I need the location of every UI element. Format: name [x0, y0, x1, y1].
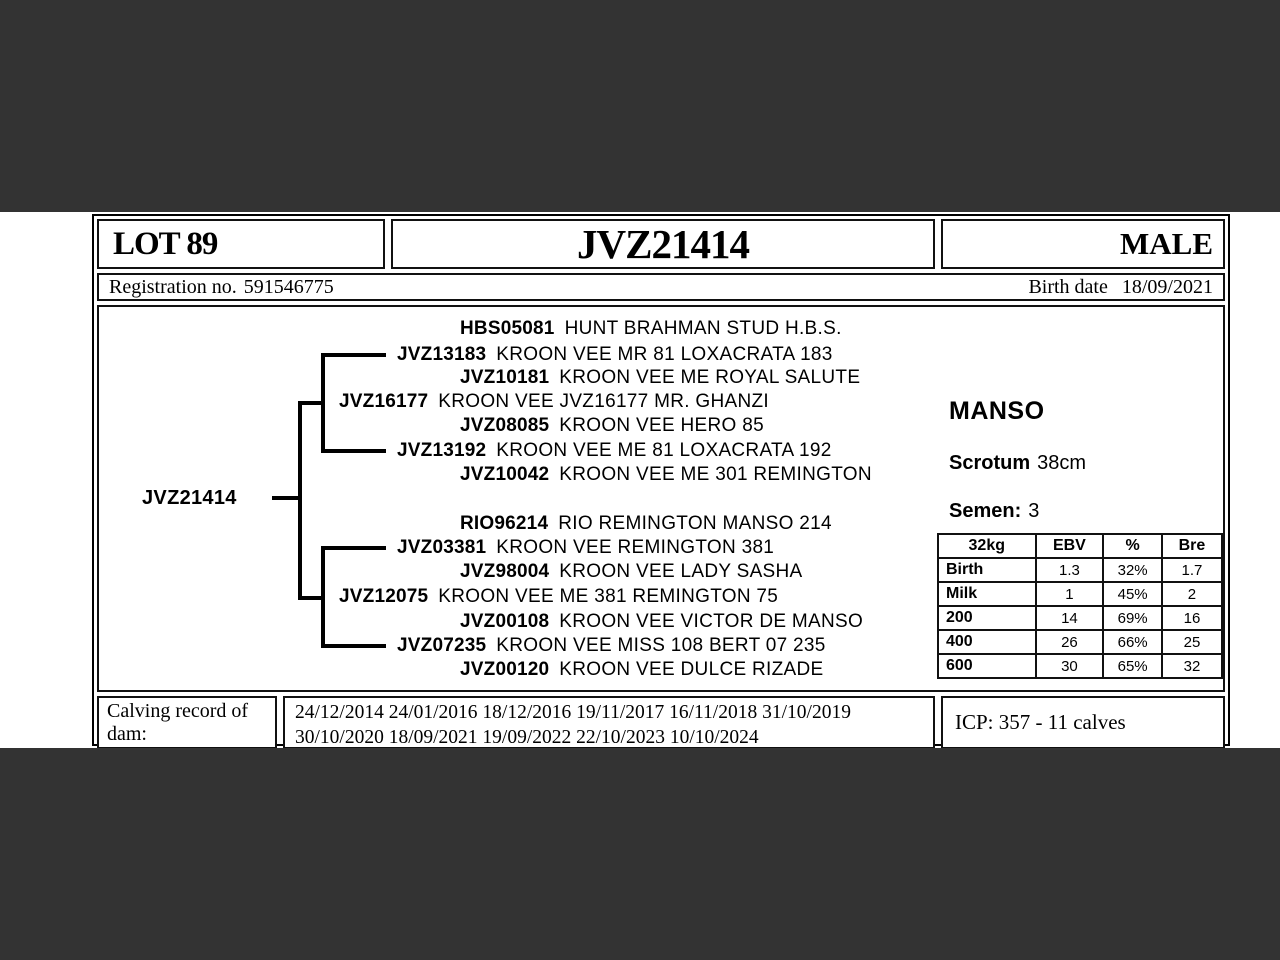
ebv-header-ebv: EBV [1036, 534, 1104, 558]
breed-name: MANSO [949, 397, 1045, 426]
card-header: LOT 89 JVZ21414 MALE [97, 219, 1225, 269]
ebv-value: 26 [1036, 630, 1104, 654]
pedigree-row: JVZ00120KROON VEE DULCE RIZADE [460, 658, 824, 682]
pedigree-row: JVZ10042KROON VEE ME 301 REMINGTON [460, 463, 872, 487]
registration-bar: Registration no.591546775 Birth date18/0… [97, 273, 1225, 301]
semen-label: Semen: [949, 500, 1021, 522]
animal-code: JVZ00120 [460, 659, 549, 680]
animal-code: JVZ03381 [397, 537, 486, 558]
pedigree-panel: JVZ21414 HBS05081HUNT BRAHMAN STUD H.B.S… [97, 305, 1225, 692]
pedigree-row: RIO96214RIO REMINGTON MANSO 214 [460, 512, 832, 536]
ebv-row-label: 400 [938, 630, 1036, 654]
ebv-table: 32kg EBV % Bre Birth 1.3 32% 1.7 Milk 1 … [937, 533, 1223, 679]
animal-name: KROON VEE DULCE RIZADE [559, 659, 823, 680]
calving-dates-line1: 24/12/2014 24/01/2016 18/12/2016 19/11/2… [295, 700, 923, 725]
ebv-accuracy: 66% [1103, 630, 1162, 654]
animal-name: KROON VEE ME 381 REMINGTON 75 [438, 586, 778, 607]
pedigree-row: JVZ13192KROON VEE ME 81 LOXACRATA 192 [397, 439, 832, 463]
calving-dates: 24/12/2014 24/01/2016 18/12/2016 19/11/2… [283, 696, 935, 749]
ebv-breed-avg: 16 [1162, 606, 1222, 630]
animal-name: KROON VEE REMINGTON 381 [496, 537, 774, 558]
animal-code: RIO96214 [460, 513, 548, 534]
pedigree-row: JVZ00108KROON VEE VICTOR DE MANSO [460, 610, 863, 634]
ebv-row-200: 200 14 69% 16 [938, 606, 1222, 630]
pedigree-row: JVZ08085KROON VEE HERO 85 [460, 414, 764, 438]
animal-code: JVZ10042 [460, 464, 549, 485]
registration-label: Registration no. [109, 276, 237, 298]
pedigree-row: JVZ98004KROON VEE LADY SASHA [460, 560, 803, 584]
page-background: LOT 89 JVZ21414 MALE Registration no.591… [0, 212, 1280, 748]
ebv-value: 30 [1036, 654, 1104, 678]
animal-code: JVZ07235 [397, 635, 486, 656]
scrotum-measurement: Scrotum38cm [949, 450, 1086, 476]
ebv-row-400: 400 26 66% 25 [938, 630, 1222, 654]
ebv-accuracy: 65% [1103, 654, 1162, 678]
ebv-breed-avg: 32 [1162, 654, 1222, 678]
animal-code: JVZ12075 [339, 586, 428, 607]
ebv-breed-avg: 2 [1162, 582, 1222, 606]
pedigree-row: JVZ03381KROON VEE REMINGTON 381 [397, 536, 774, 560]
animal-code: JVZ16177 [339, 391, 428, 412]
ebv-accuracy: 69% [1103, 606, 1162, 630]
ebv-row-600: 600 30 65% 32 [938, 654, 1222, 678]
animal-code: JVZ98004 [460, 561, 549, 582]
animal-name: KROON VEE LADY SASHA [559, 561, 802, 582]
pedigree-row: JVZ07235KROON VEE MISS 108 BERT 07 235 [397, 634, 826, 658]
ebv-breed-avg: 1.7 [1162, 558, 1222, 582]
ebv-value: 1 [1036, 582, 1104, 606]
animal-code: JVZ10181 [460, 367, 549, 388]
animal-code: HBS05081 [460, 318, 555, 339]
icp-value: ICP: 357 - 11 calves [941, 696, 1225, 749]
calving-dates-line2: 30/10/2020 18/09/2021 19/09/2022 22/10/2… [295, 725, 923, 750]
pedigree-row: JVZ10181KROON VEE ME ROYAL SALUTE [460, 366, 860, 390]
semen-value: 3 [1028, 500, 1039, 522]
animal-code: JVZ00108 [460, 611, 549, 632]
sex-label: MALE [941, 219, 1225, 269]
ebv-header-accuracy: % [1103, 534, 1162, 558]
ebv-row-label: 600 [938, 654, 1036, 678]
calving-record-label: Calving record of dam: [97, 696, 277, 749]
animal-name: KROON VEE HERO 85 [559, 415, 764, 436]
registration-value: 591546775 [244, 276, 334, 298]
ebv-value: 14 [1036, 606, 1104, 630]
card-footer: Calving record of dam: 24/12/2014 24/01/… [97, 696, 1225, 749]
animal-id-title: JVZ21414 [391, 219, 935, 269]
ebv-row-label: Milk [938, 582, 1036, 606]
animal-name: KROON VEE ME 301 REMINGTON [559, 464, 872, 485]
animal-name: RIO REMINGTON MANSO 214 [558, 513, 832, 534]
pedigree-row: HBS05081HUNT BRAHMAN STUD H.B.S. [460, 317, 842, 341]
animal-code: JVZ13192 [397, 440, 486, 461]
semen-count: Semen:3 [949, 498, 1039, 524]
ebv-header-weight: 32kg [938, 534, 1036, 558]
animal-code: JVZ08085 [460, 415, 549, 436]
pedigree-row: JVZ13183KROON VEE MR 81 LOXACRATA 183 [397, 343, 833, 367]
animal-name: KROON VEE MR 81 LOXACRATA 183 [496, 344, 832, 365]
scrotum-label: Scrotum [949, 452, 1030, 474]
bottom-letterbox [0, 748, 1280, 960]
registration-number: Registration no.591546775 [109, 276, 334, 299]
top-letterbox [0, 0, 1280, 212]
birth-date-label: Birth date [1028, 276, 1107, 298]
animal-name: KROON VEE VICTOR DE MANSO [559, 611, 863, 632]
ebv-row-milk: Milk 1 45% 2 [938, 582, 1222, 606]
animal-name: KROON VEE JVZ16177 MR. GHANZI [438, 391, 769, 412]
ebv-header-breed: Bre [1162, 534, 1222, 558]
pedigree-row-sire: JVZ16177KROON VEE JVZ16177 MR. GHANZI [339, 390, 769, 414]
animal-name: KROON VEE MISS 108 BERT 07 235 [496, 635, 825, 656]
pedigree-row-dam: JVZ12075KROON VEE ME 381 REMINGTON 75 [339, 585, 778, 609]
animal-name: KROON VEE ME 81 LOXACRATA 192 [496, 440, 831, 461]
ebv-row-label: Birth [938, 558, 1036, 582]
lot-number: LOT 89 [97, 219, 385, 269]
animal-name: HUNT BRAHMAN STUD H.B.S. [565, 318, 842, 339]
birth-date-value: 18/09/2021 [1122, 276, 1213, 298]
birth-date: Birth date18/09/2021 [1028, 276, 1213, 299]
pedigree-subject: JVZ21414 [142, 486, 237, 510]
ebv-accuracy: 45% [1103, 582, 1162, 606]
ebv-row-birth: Birth 1.3 32% 1.7 [938, 558, 1222, 582]
ebv-value: 1.3 [1036, 558, 1104, 582]
ebv-header-row: 32kg EBV % Bre [938, 534, 1222, 558]
ebv-accuracy: 32% [1103, 558, 1162, 582]
ebv-row-label: 200 [938, 606, 1036, 630]
animal-name: KROON VEE ME ROYAL SALUTE [559, 367, 860, 388]
animal-code: JVZ13183 [397, 344, 486, 365]
scrotum-value: 38cm [1037, 452, 1086, 474]
ebv-breed-avg: 25 [1162, 630, 1222, 654]
lot-card: LOT 89 JVZ21414 MALE Registration no.591… [92, 214, 1230, 746]
